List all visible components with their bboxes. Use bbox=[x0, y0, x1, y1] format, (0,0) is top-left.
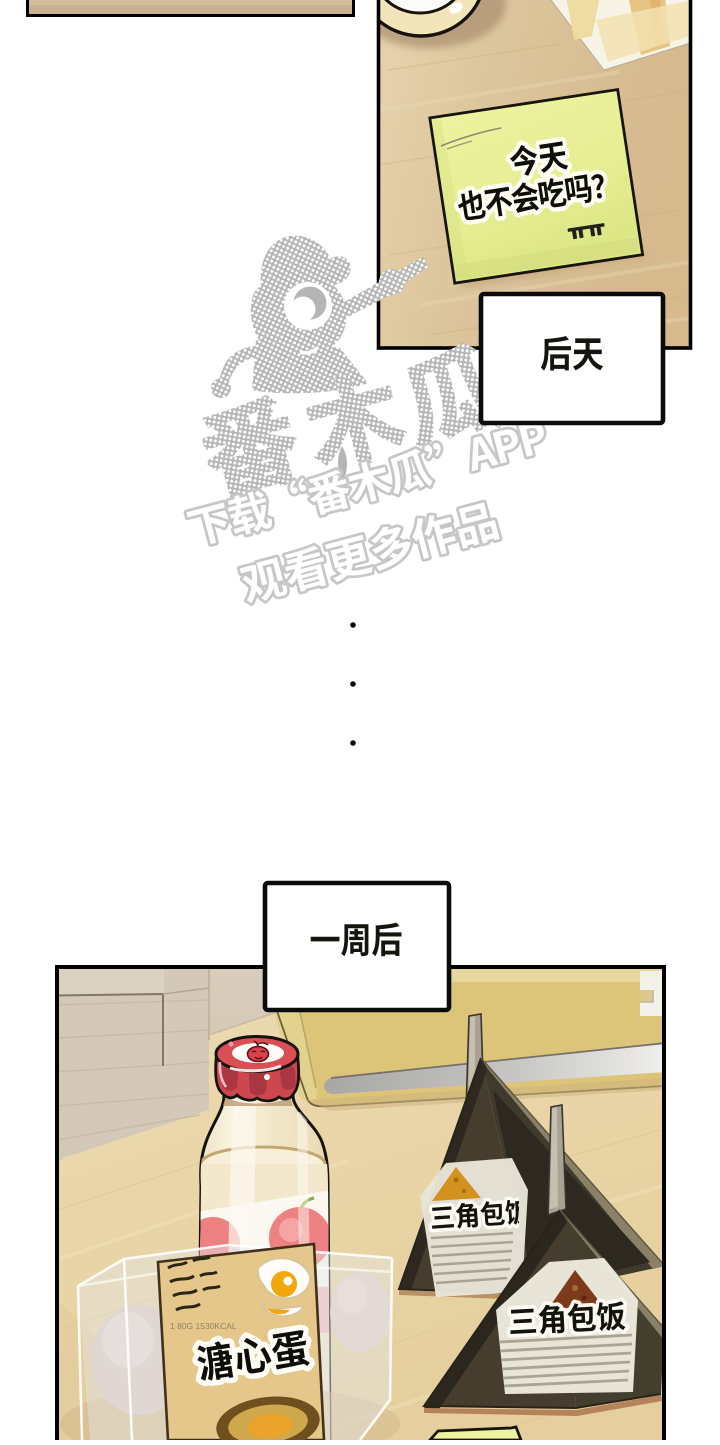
svg-text:1 80G 1530KCAL: 1 80G 1530KCAL bbox=[170, 1321, 237, 1331]
